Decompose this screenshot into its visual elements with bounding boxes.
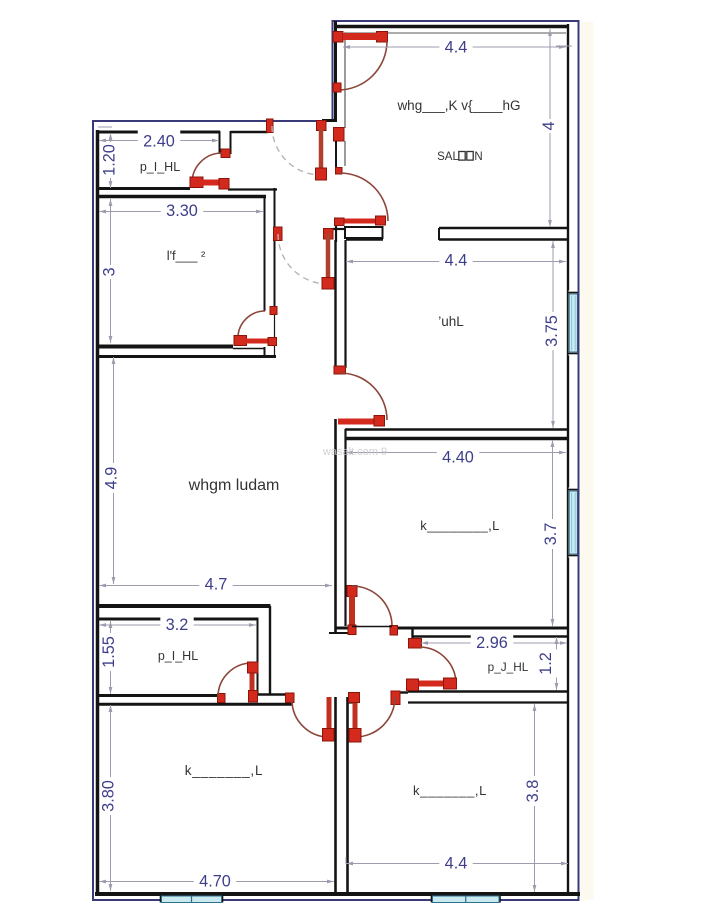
svg-text:4.70: 4.70 [199, 872, 231, 890]
svg-text:3.8: 3.8 [524, 780, 542, 803]
svg-text:1.55: 1.55 [100, 636, 118, 668]
svg-text:1.2: 1.2 [537, 652, 555, 675]
svg-text:p_J_HL: p_J_HL [488, 660, 529, 674]
svg-text:3.7: 3.7 [542, 523, 560, 546]
svg-text:4.7: 4.7 [205, 575, 228, 593]
svg-text:SAL: SAL [437, 151, 459, 163]
svg-text:3.80: 3.80 [100, 780, 118, 812]
svg-text:4: 4 [540, 121, 558, 130]
svg-text:3.2: 3.2 [166, 616, 189, 634]
svg-text:wasalt.com 9: wasalt.com 9 [322, 446, 387, 458]
svg-text:k________,L: k________,L [420, 518, 500, 533]
svg-text:4.4: 4.4 [445, 251, 468, 269]
svg-text:k_______,L: k_______,L [413, 783, 487, 798]
svg-text:2.96: 2.96 [476, 634, 508, 652]
svg-text:whgm ludam: whgm ludam [188, 477, 280, 494]
svg-text:p_I_HL: p_I_HL [158, 649, 198, 663]
svg-text:p_I_HL: p_I_HL [140, 160, 180, 174]
svg-text:l'f___ ²: l'f___ ² [167, 248, 206, 263]
svg-text:k_______,L: k_______,L [185, 763, 264, 778]
svg-text:4.40: 4.40 [442, 448, 474, 466]
svg-text:4.4: 4.4 [445, 854, 468, 872]
svg-text:whg___,K v{____hG: whg___,K v{____hG [396, 98, 520, 113]
svg-text:N: N [474, 151, 482, 163]
svg-text:3: 3 [101, 267, 119, 276]
svg-text:3.75: 3.75 [543, 315, 561, 347]
svg-text:4.4: 4.4 [445, 38, 468, 56]
svg-text:4.9: 4.9 [103, 467, 121, 490]
svg-text:2.40: 2.40 [143, 132, 175, 150]
svg-text:1.20: 1.20 [101, 144, 119, 176]
svg-text:3.30: 3.30 [166, 202, 198, 220]
svg-text:’uhL: ’uhL [438, 314, 464, 329]
